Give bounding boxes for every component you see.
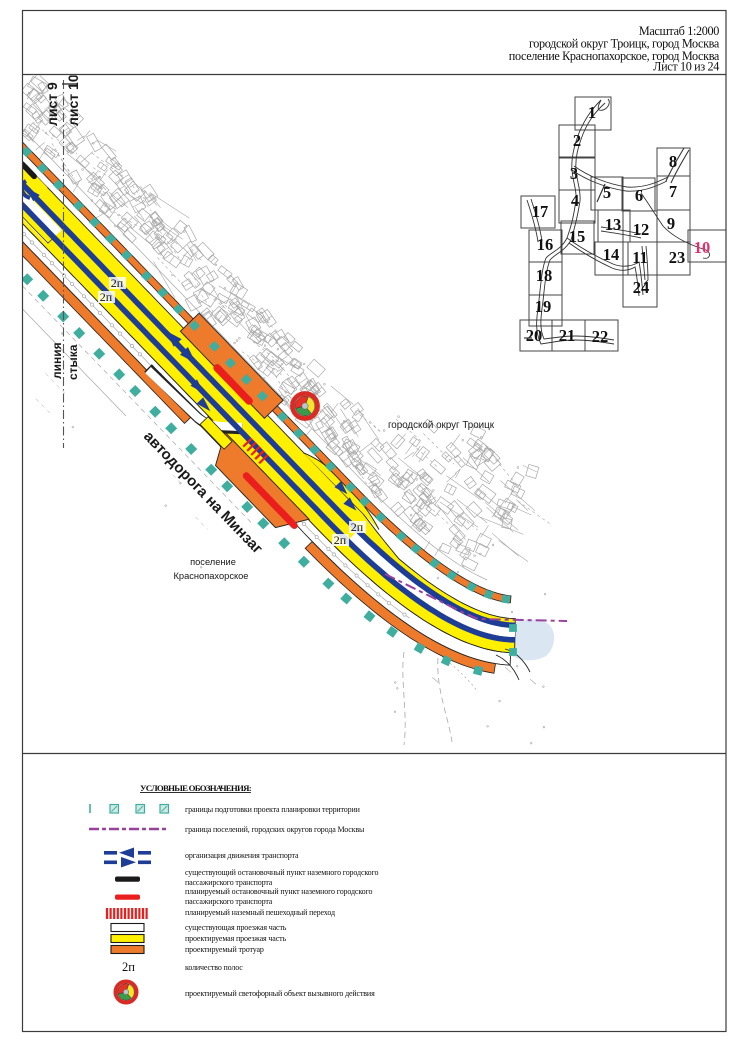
svg-text:17: 17 (532, 202, 549, 221)
svg-text:7: 7 (669, 182, 677, 201)
svg-text:городской округ Троицк: городской округ Троицк (388, 420, 495, 431)
svg-text:поселение: поселение (190, 557, 236, 567)
svg-text:существующая проезжая часть: существующая проезжая часть (185, 923, 287, 932)
svg-text:19: 19 (535, 297, 552, 316)
svg-text:24: 24 (633, 278, 650, 297)
svg-text:16: 16 (537, 235, 554, 254)
svg-text:2п: 2п (122, 960, 135, 974)
svg-text:8: 8 (669, 152, 677, 171)
svg-text:границы подготовки проекта пла: границы подготовки проекта планировки те… (185, 805, 361, 814)
svg-text:2п: 2п (100, 290, 113, 304)
svg-text:проектируемый светофорный объе: проектируемый светофорный объект вызывно… (185, 989, 375, 998)
svg-text:количество полос: количество полос (185, 963, 243, 972)
svg-text:13: 13 (605, 215, 622, 234)
svg-text:2п: 2п (111, 276, 124, 290)
svg-text:6: 6 (635, 186, 643, 205)
svg-text:лист 9: лист 9 (44, 82, 60, 126)
svg-text:2п: 2п (334, 533, 347, 547)
svg-text:УСЛОВНЫЕ ОБОЗНАЧЕНИЯ:: УСЛОВНЫЕ ОБОЗНАЧЕНИЯ: (140, 783, 252, 793)
svg-text:9: 9 (667, 214, 675, 233)
svg-text:пассажирского транспорта: пассажирского транспорта (185, 897, 273, 906)
svg-text:23: 23 (669, 248, 686, 267)
svg-text:Лист 10 из 24: Лист 10 из 24 (653, 60, 719, 74)
svg-text:планируемый остановочный пункт: планируемый остановочный пункт наземного… (185, 887, 372, 896)
svg-text:2п: 2п (351, 520, 364, 534)
svg-text:2: 2 (573, 131, 581, 150)
svg-text:линия: линия (50, 342, 64, 379)
svg-text:12: 12 (633, 220, 650, 239)
svg-text:10: 10 (694, 238, 711, 257)
svg-text:11: 11 (632, 248, 648, 267)
svg-text:граница поселений, городских о: граница поселений, городских округов гор… (185, 825, 365, 834)
svg-text:14: 14 (603, 245, 620, 264)
svg-text:организация движения транспорт: организация движения транспорта (185, 851, 299, 860)
svg-text:стыка: стыка (66, 344, 80, 380)
svg-text:планируемый наземный пешеходны: планируемый наземный пешеходный переход (185, 908, 335, 917)
svg-text:20: 20 (526, 326, 543, 345)
svg-text:3: 3 (570, 164, 578, 183)
svg-text:21: 21 (559, 326, 576, 345)
svg-text:лист 10: лист 10 (65, 74, 81, 126)
svg-text:существующий остановочный пунк: существующий остановочный пункт наземног… (185, 868, 378, 877)
svg-text:1: 1 (588, 103, 596, 122)
svg-text:22: 22 (592, 327, 609, 346)
svg-text:18: 18 (536, 266, 553, 285)
svg-text:пассажирского транспорта: пассажирского транспорта (185, 878, 273, 887)
svg-text:15: 15 (569, 227, 586, 246)
svg-text:проектируемый тротуар: проектируемый тротуар (185, 945, 264, 954)
svg-text:4: 4 (571, 191, 579, 210)
svg-text:5: 5 (603, 183, 611, 202)
svg-text:Краснопахорское: Краснопахорское (174, 571, 249, 581)
svg-text:проектируемая проезжая часть: проектируемая проезжая часть (185, 934, 286, 943)
